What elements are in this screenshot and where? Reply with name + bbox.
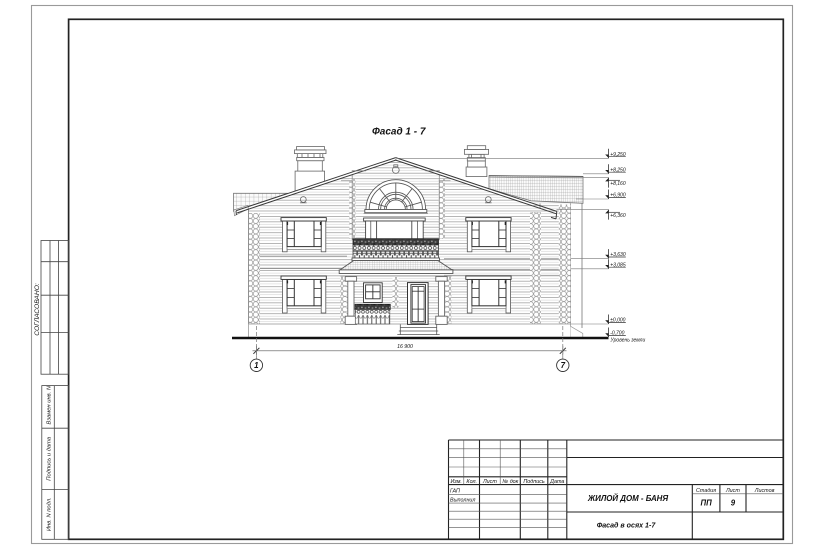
svg-text:Уровень земли: Уровень земли: [611, 337, 646, 343]
svg-text:Подпись: Подпись: [523, 479, 545, 485]
svg-text:Инв. N подл.: Инв. N подл.: [46, 497, 52, 531]
svg-text:СОГЛАСОВАНО:: СОГЛАСОВАНО:: [34, 283, 41, 336]
svg-text:7: 7: [561, 361, 566, 370]
svg-text:-0,700: -0,700: [610, 331, 624, 337]
svg-text:Фасад 1 - 7: Фасад 1 - 7: [372, 127, 426, 138]
svg-text:Изм.: Изм.: [450, 479, 462, 485]
svg-text:Дата: Дата: [549, 479, 564, 485]
svg-text:Кол.: Кол.: [466, 479, 477, 485]
svg-text:Выполнил: Выполнил: [450, 497, 475, 503]
svg-text:+8,160: +8,160: [610, 181, 626, 187]
svg-text:1: 1: [254, 361, 259, 370]
svg-text:+9,250: +9,250: [610, 152, 626, 158]
svg-text:+6,360: +6,360: [610, 213, 626, 219]
svg-text:9: 9: [731, 499, 736, 508]
svg-text:Взамен инв. N: Взамен инв. N: [46, 385, 52, 424]
svg-text:ГАП: ГАП: [450, 489, 460, 495]
svg-text:±0,000: ±0,000: [610, 318, 625, 324]
svg-text:+8,250: +8,250: [610, 167, 626, 173]
svg-text:Лист: Лист: [482, 479, 497, 485]
svg-text:Стадия: Стадия: [696, 488, 716, 494]
svg-text:+3,630: +3,630: [610, 252, 626, 258]
svg-text:ПП: ПП: [700, 499, 712, 508]
svg-text:+6,900: +6,900: [610, 193, 626, 199]
svg-text:ЖИЛОЙ ДОМ - БАНЯ: ЖИЛОЙ ДОМ - БАНЯ: [587, 494, 669, 503]
svg-text:Фасад в осях 1-7: Фасад в осях 1-7: [597, 521, 657, 529]
svg-text:+3,085: +3,085: [610, 262, 626, 268]
svg-text:16 900: 16 900: [397, 344, 413, 350]
svg-text:Подпись и дата: Подпись и дата: [46, 436, 52, 481]
svg-text:Лист: Лист: [725, 488, 740, 494]
svg-text:№ док: № док: [502, 479, 518, 485]
svg-text:Листов: Листов: [754, 488, 775, 494]
